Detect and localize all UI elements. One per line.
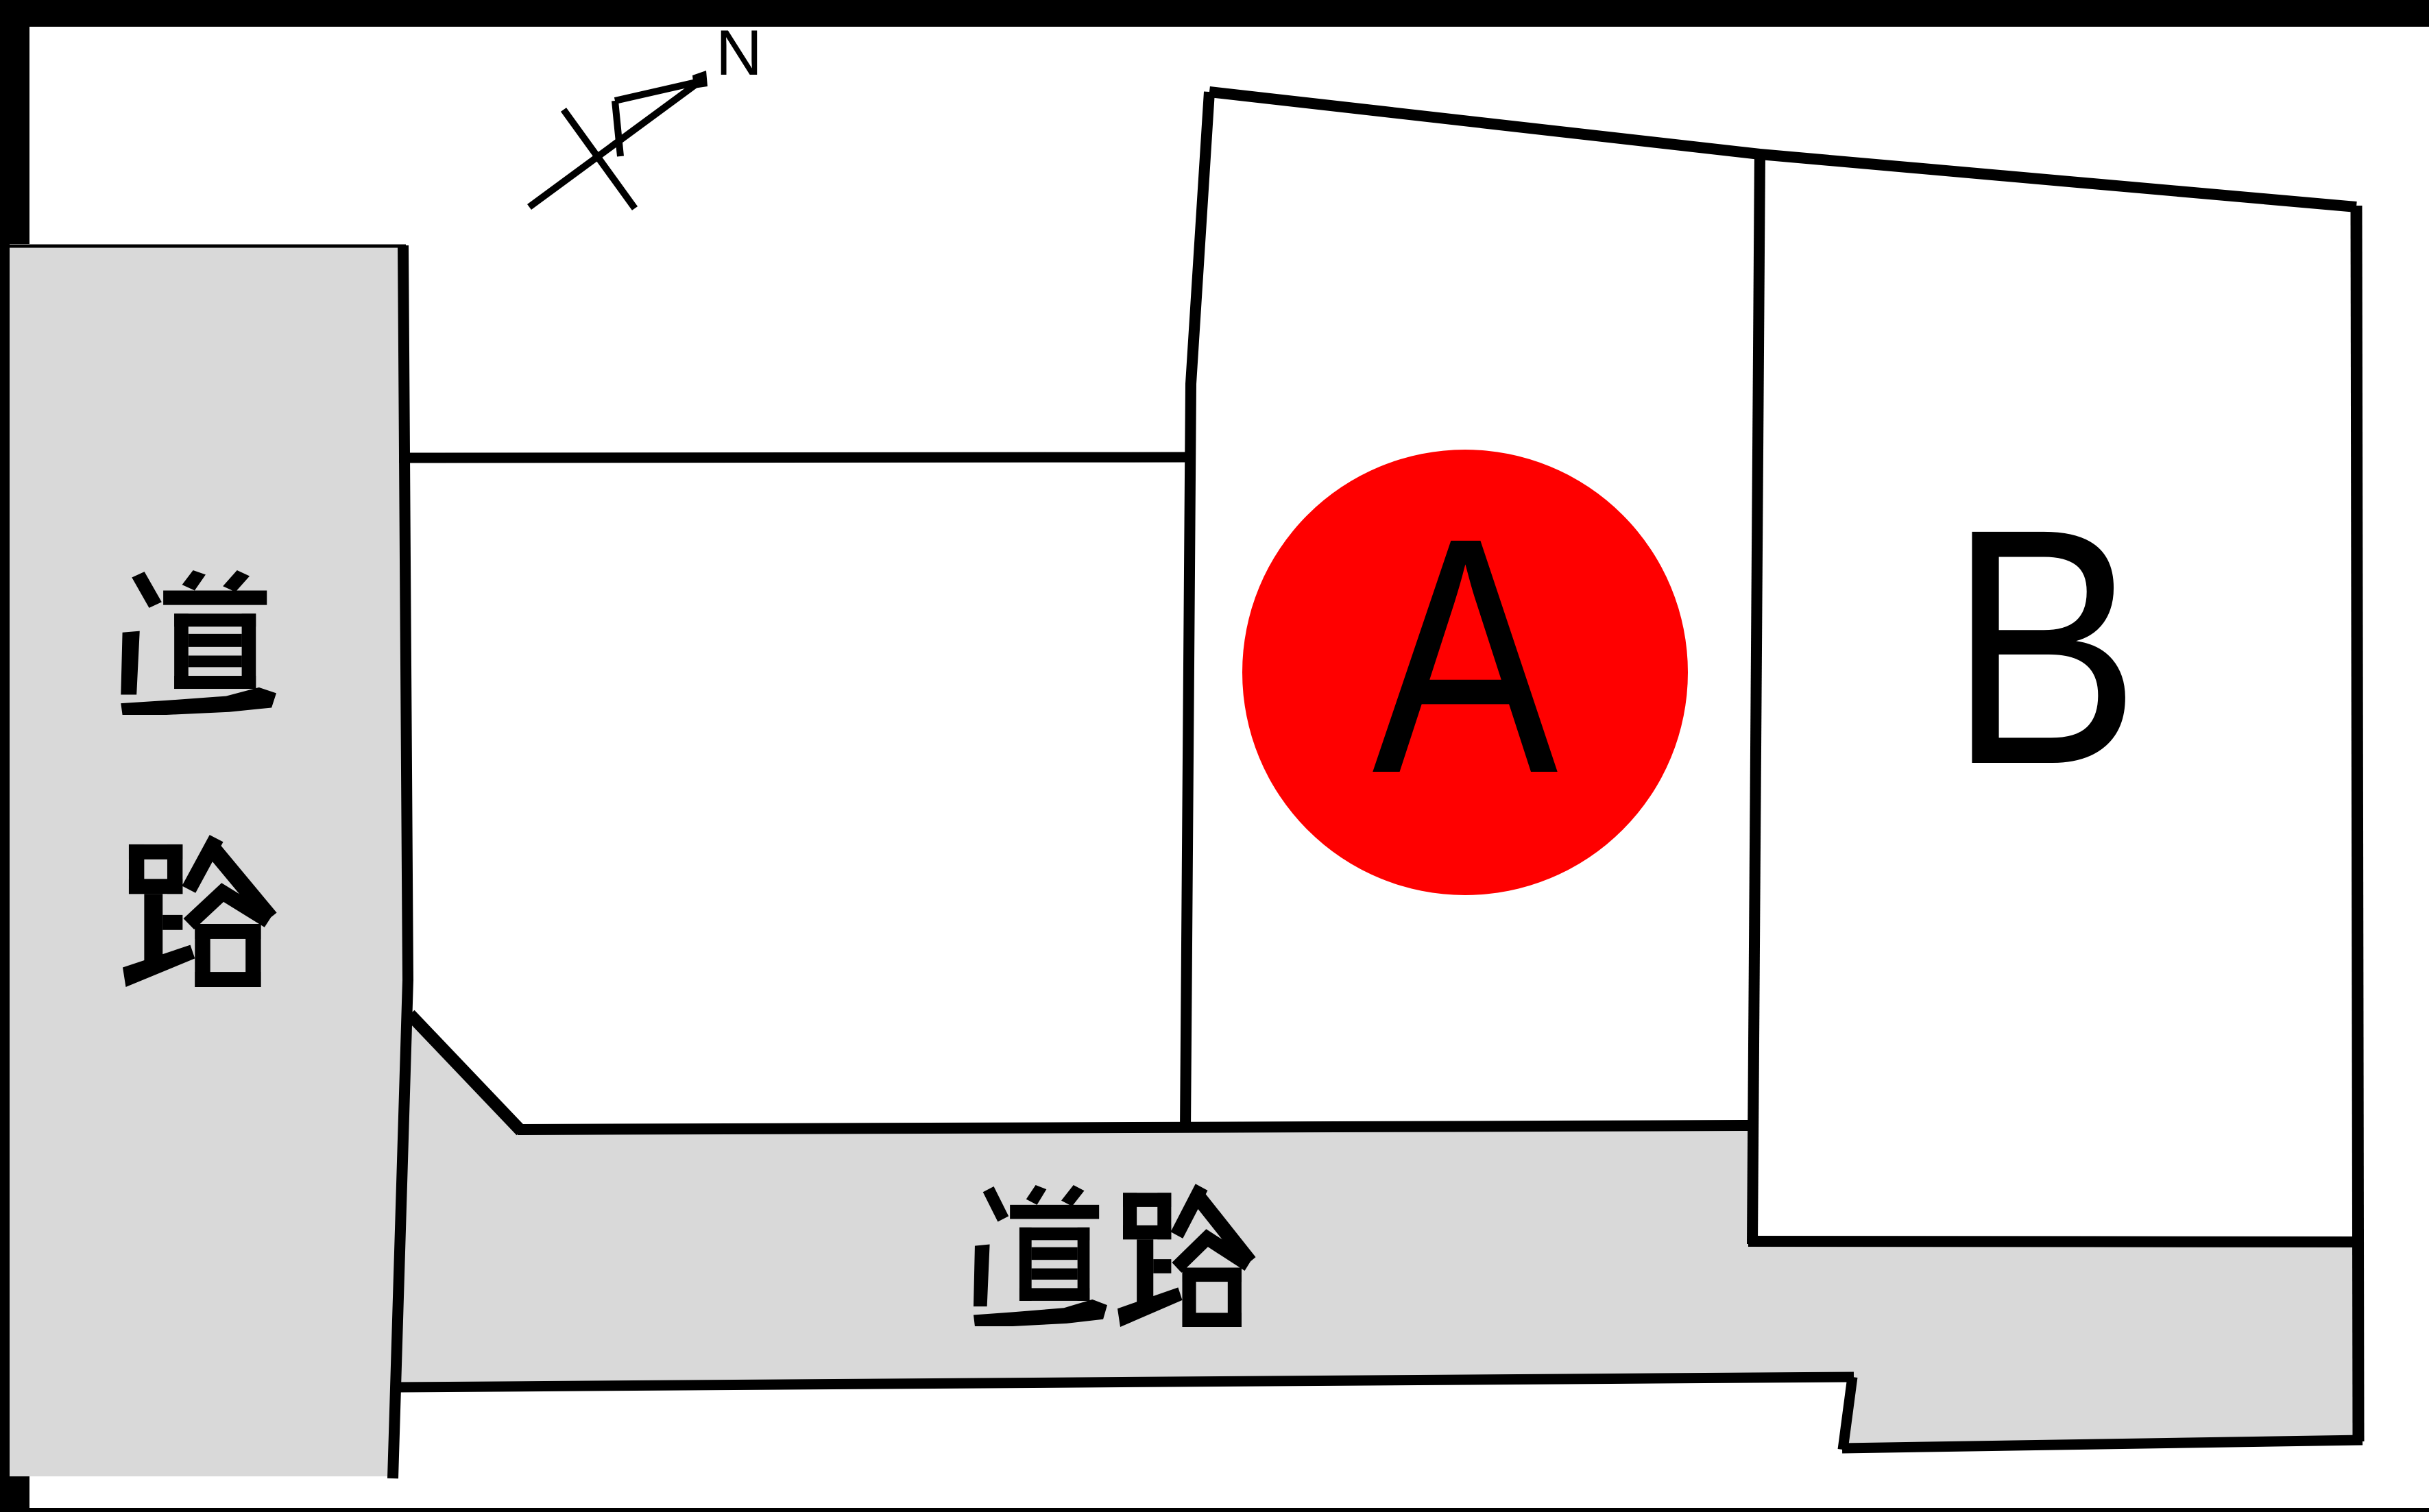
svg-text:N: N	[716, 16, 762, 88]
svg-text:B: B	[1948, 459, 2140, 834]
svg-text:A: A	[1373, 467, 1560, 843]
